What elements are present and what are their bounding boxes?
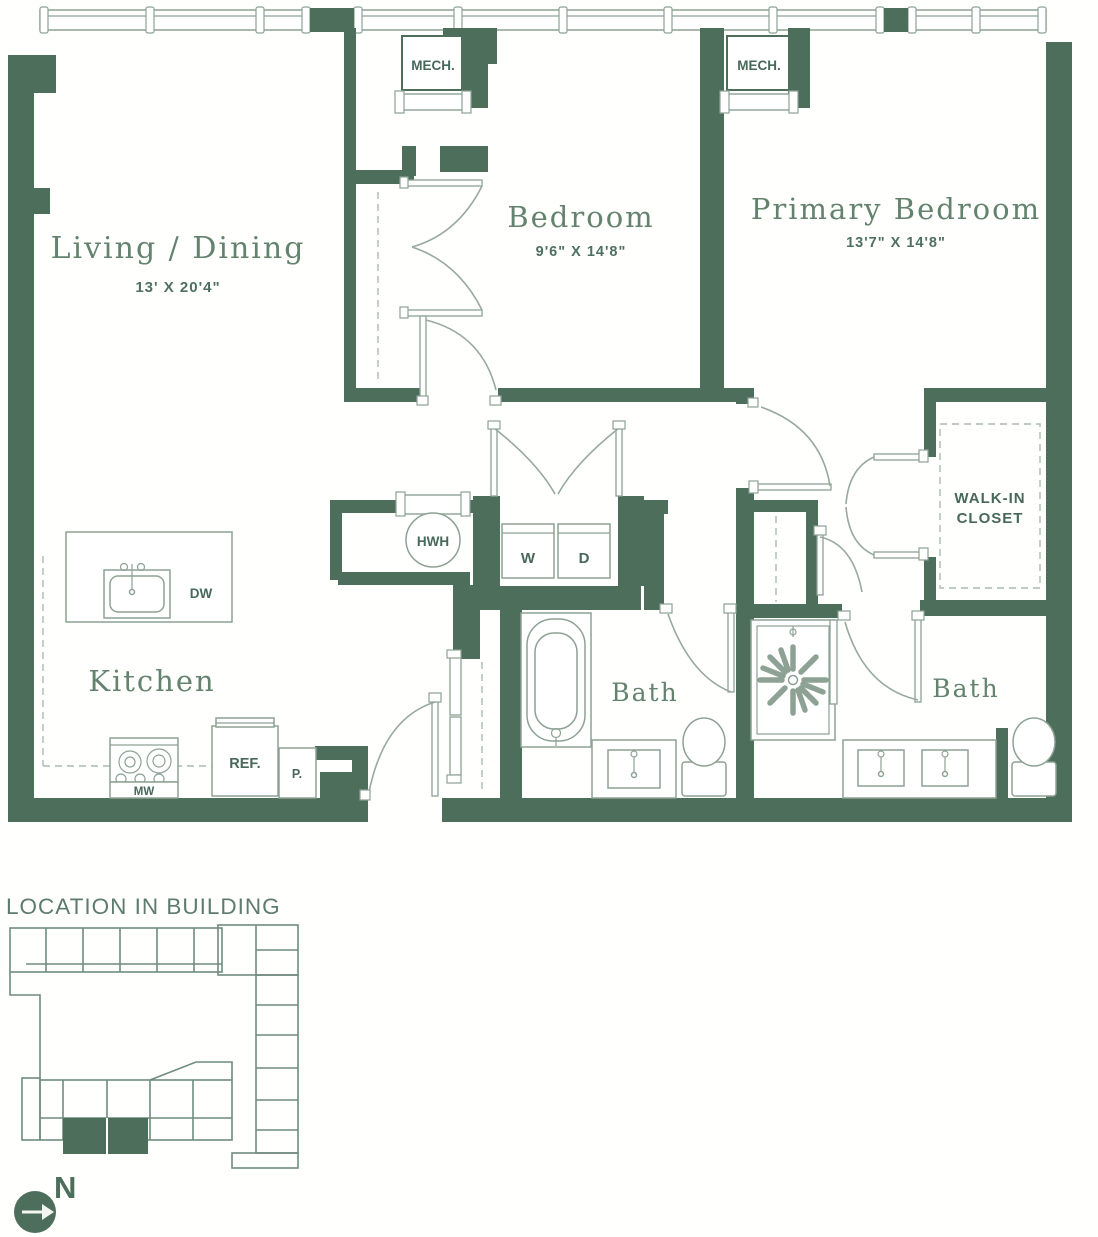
unit-entry-door xyxy=(360,693,441,800)
primary-bedroom-dimensions: 13'7" X 14'8" xyxy=(846,235,946,251)
range-stove xyxy=(110,738,178,784)
location-in-building-section: LOCATION IN BUILDING xyxy=(6,894,298,1233)
bath-left-toilet xyxy=(682,718,726,796)
bedroom-label: Bedroom xyxy=(507,200,654,234)
bath-left-label: Bath xyxy=(611,678,678,707)
living-dining-label: Living / Dining xyxy=(51,231,306,266)
washer-label: W xyxy=(521,550,536,567)
bedroom-entry-door xyxy=(417,316,501,405)
bedroom-closet-doors xyxy=(400,177,482,318)
bath-right-label: Bath xyxy=(932,674,999,703)
kitchen-sink xyxy=(104,564,170,619)
primary-bedroom-label: Primary Bedroom xyxy=(751,192,1041,226)
walk-in-closet-doors xyxy=(846,450,928,560)
bath-left-vanity xyxy=(592,740,676,798)
dryer-label: D xyxy=(579,550,590,567)
mech-room-right xyxy=(720,36,798,113)
linen-closet-doors xyxy=(447,650,461,783)
hall-closet-door xyxy=(814,526,862,595)
mech-right-label: MECH. xyxy=(737,58,781,73)
walk-in-closet-label-line2: CLOSET xyxy=(957,510,1024,527)
unit-location-highlight xyxy=(63,1118,148,1154)
building-outline xyxy=(10,925,298,1168)
water-heater-label: HWH xyxy=(417,534,449,549)
north-label: N xyxy=(54,1170,76,1205)
walk-in-closet-label-line1: WALK-IN xyxy=(954,490,1025,507)
mech-room-left xyxy=(395,36,471,113)
pantry-label: P. xyxy=(292,767,302,781)
bath-right-vanity xyxy=(843,740,996,798)
kitchen-label: Kitchen xyxy=(88,664,215,698)
bathtub xyxy=(521,613,591,747)
location-section-title: LOCATION IN BUILDING xyxy=(6,894,281,919)
microwave-label: MW xyxy=(134,786,155,798)
shower xyxy=(751,620,837,740)
refrigerator-label: REF. xyxy=(229,756,260,772)
laundry-french-doors xyxy=(488,421,625,496)
primary-bedroom-door xyxy=(748,398,831,493)
dishwasher-label: DW xyxy=(190,586,213,601)
north-arrow: N xyxy=(14,1170,76,1233)
shower-door xyxy=(830,620,837,704)
bath-right-door xyxy=(838,611,924,702)
floor-plan-drawing: Living / Dining 13' X 20'4" Bedroom 9'6"… xyxy=(0,0,1098,1237)
mech-left-label: MECH. xyxy=(411,58,455,73)
floor-plan-page: Living / Dining 13' X 20'4" Bedroom 9'6"… xyxy=(0,0,1098,1237)
bath-right-toilet xyxy=(1012,718,1056,796)
living-dining-dimensions: 13' X 20'4" xyxy=(135,279,220,296)
bedroom-dimensions: 9'6" X 14'8" xyxy=(536,244,627,260)
bath-right-fixtures xyxy=(751,620,1056,798)
